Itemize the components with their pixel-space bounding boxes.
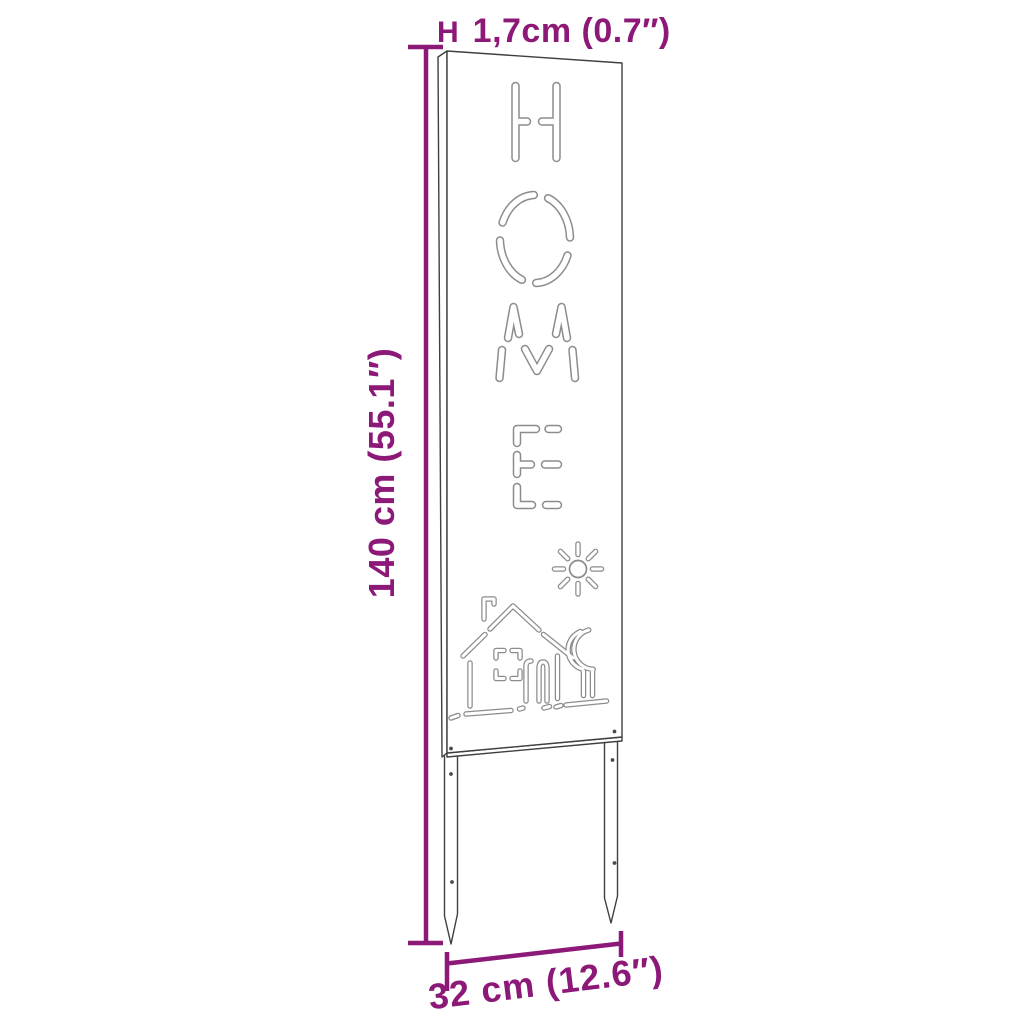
height-dimension-line bbox=[408, 47, 443, 943]
panel-side-face bbox=[438, 51, 447, 757]
ground-stakes bbox=[445, 735, 618, 944]
height-dimension-label: 140 cm (55.1″) bbox=[364, 348, 400, 598]
thickness-value: 1,7cm (0.7″) bbox=[473, 12, 671, 50]
diagram-canvas bbox=[0, 0, 1024, 1024]
right-stake bbox=[605, 735, 618, 923]
thickness-prefix: H bbox=[437, 16, 459, 49]
left-stake bbox=[445, 748, 458, 944]
product-dimension-diagram: HOME bbox=[0, 0, 1024, 1024]
thickness-dimension-label: H1,7cm (0.7″) bbox=[437, 14, 671, 48]
sign-panel bbox=[438, 51, 622, 884]
